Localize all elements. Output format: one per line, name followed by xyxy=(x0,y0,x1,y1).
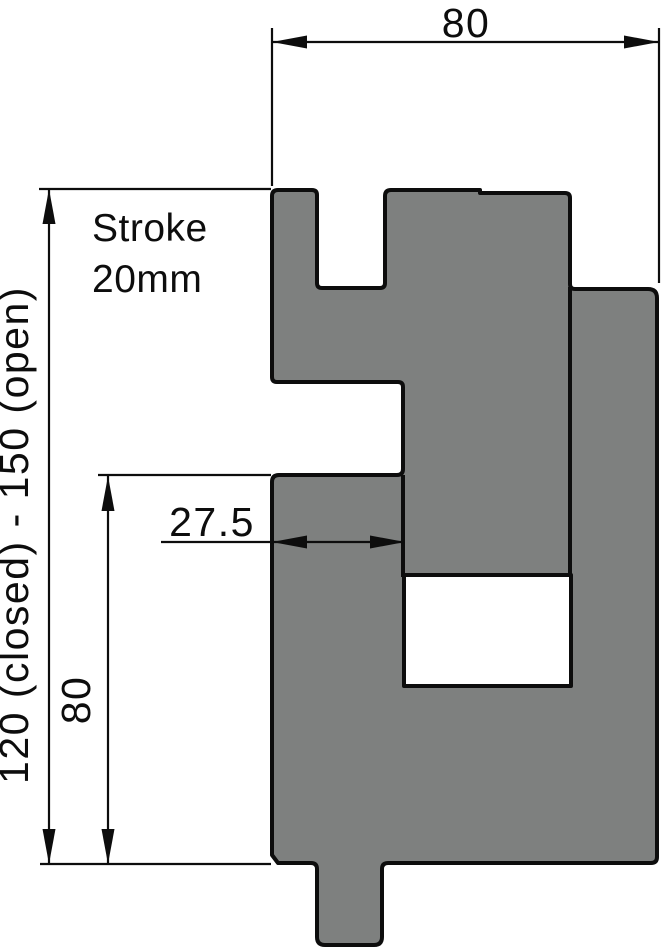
technical-drawing: 80 120 (closed) - 150 (open) 80 27.5 xyxy=(0,0,661,947)
arrowhead-right xyxy=(624,36,659,49)
part-cross-section xyxy=(272,190,657,945)
stroke-note: Stroke 20mm xyxy=(92,207,208,301)
dim-block-height-label: 80 xyxy=(53,676,99,725)
arrowhead-left xyxy=(272,36,307,49)
arrowhead-up xyxy=(43,189,56,224)
dim-block-width-label: 27.5 xyxy=(169,499,255,545)
stroke-note-line1: Stroke xyxy=(92,207,208,250)
stroke-note-line2: 20mm xyxy=(92,258,202,301)
drawing-canvas: 80 120 (closed) - 150 (open) 80 27.5 xyxy=(0,0,661,947)
arrowhead-up xyxy=(102,476,115,511)
arrowhead-down xyxy=(43,829,56,864)
dim-overall-height-label: 120 (closed) - 150 (open) xyxy=(0,286,37,784)
dim-top-width-label: 80 xyxy=(442,0,491,46)
cavity-hole xyxy=(404,575,571,686)
arrowhead-down xyxy=(102,829,115,864)
